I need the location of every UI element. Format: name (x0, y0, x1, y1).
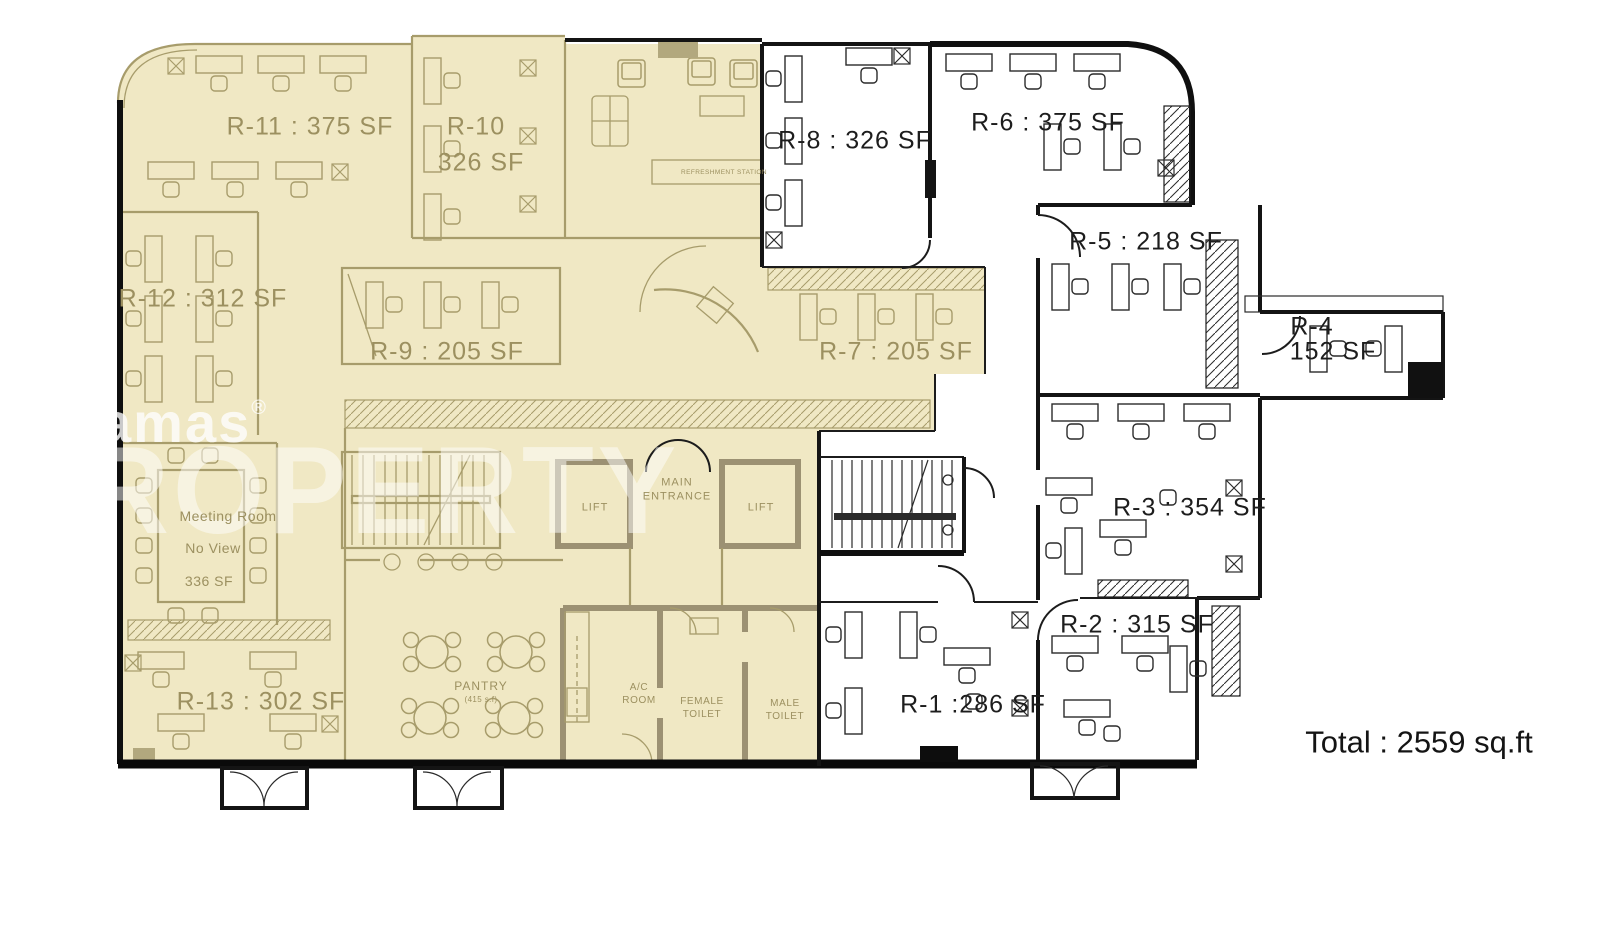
room-label-r10-name: R-10 (447, 115, 505, 140)
room-label-r1: R-1 :286 SF (900, 693, 1046, 718)
room-label-r3: R-3 : 354 SF (1113, 496, 1267, 521)
main-entrance-label-line1: MAIN (661, 478, 693, 489)
lift-right-label: LIFT (748, 503, 775, 514)
room-label-r11: R-11 : 375 SF (227, 115, 394, 140)
ac-room-label-line1: A/C (630, 683, 648, 693)
pantry-area-label: (415 s.f) (465, 696, 498, 704)
room-label-r10-area: 326 SF (438, 151, 525, 176)
lift-left-label: LIFT (582, 503, 609, 514)
total-area-label: Total : 2559 sq.ft (1305, 727, 1532, 758)
meeting-room-area-label: 336 SF (185, 574, 233, 588)
main-entrance-label-line2: ENTRANCE (643, 492, 712, 503)
room-label-r8: R-8 : 326 SF (778, 129, 932, 154)
room-label-r4-name: R-4 (1290, 315, 1333, 340)
floor-plan: amas® ROPERTY R-11 : 375 SF R-10 326 SF … (0, 0, 1600, 948)
room-label-r6: R-6 : 375 SF (971, 111, 1125, 136)
meeting-room-label: Meeting Room (179, 509, 276, 523)
refreshment-station-label: REFRESHMENT STATION (681, 170, 767, 177)
room-label-r9: R-9 : 205 SF (370, 340, 524, 365)
female-toilet-label-line2: TOILET (683, 710, 721, 720)
room-label-r2: R-2 : 315 SF (1060, 613, 1214, 638)
female-toilet-label-line1: FEMALE (680, 697, 724, 707)
meeting-room-view-label: No View (185, 541, 240, 555)
room-label-r12: R-12 : 312 SF (119, 287, 288, 312)
room-label-r4-area: 152 SF (1290, 340, 1377, 365)
ac-room-label-line2: ROOM (622, 696, 656, 706)
room-label-r7: R-7 : 205 SF (819, 340, 973, 365)
room-label-r5: R-5 : 218 SF (1069, 230, 1223, 255)
male-toilet-label-line2: TOILET (766, 712, 804, 722)
pantry-label: PANTRY (454, 680, 508, 692)
male-toilet-label-line1: MALE (770, 699, 800, 709)
room-label-r13: R-13 : 302 SF (177, 690, 346, 715)
